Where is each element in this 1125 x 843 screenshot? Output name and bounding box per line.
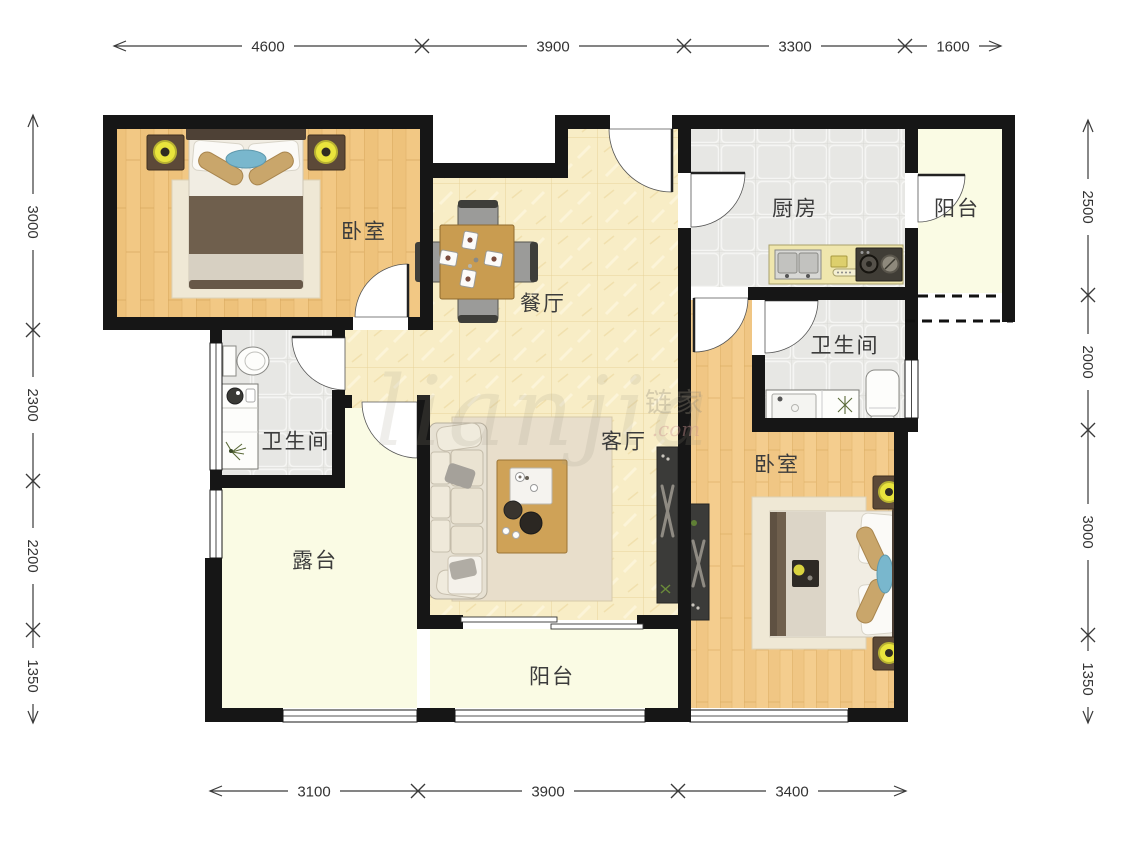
- watermark-cjk: 链家: [645, 388, 707, 418]
- dim-left-2: 2200: [24, 539, 41, 572]
- dim-top-1: 3900: [536, 38, 569, 55]
- dim-right-0: 2500: [1079, 190, 1096, 223]
- dim-bottom-1: 3900: [531, 783, 564, 800]
- nightstand-lamp: [147, 135, 184, 170]
- room-label-bathroom-right: 卫生间: [811, 334, 880, 357]
- dim-chain-right: 2500 2000 3000 1350: [1079, 120, 1097, 723]
- dim-right-3: 1350: [1079, 662, 1096, 695]
- tv-panel-bedroom: [688, 504, 709, 620]
- nightstand-lamp: [308, 135, 345, 170]
- room-label-bathroom-left: 卫生间: [262, 430, 331, 453]
- window: [690, 710, 848, 722]
- kitchen-counter: [769, 245, 903, 284]
- kitchen-sink: [775, 250, 821, 279]
- room-label-dining: 餐厅: [520, 292, 566, 315]
- window: [283, 710, 417, 722]
- room-label-balcony-bottom: 阳台: [529, 665, 575, 688]
- dim-top-2: 3300: [778, 38, 811, 55]
- floor-plan-canvas: lianjia 链家 .com 卧室 餐厅 厨房 阳台 卫生间 卧室 客厅 卫生…: [0, 0, 1125, 843]
- open-boundary-dashed: [905, 296, 1013, 321]
- room-label-balcony-top-right: 阳台: [934, 197, 980, 220]
- dim-chain-left: 3000 2300 2200 1350: [24, 115, 42, 723]
- room-label-kitchen: 厨房: [772, 197, 818, 220]
- toilet: [866, 370, 899, 426]
- bed-top-left: [147, 126, 345, 298]
- dim-right-1: 2000: [1079, 345, 1096, 378]
- dim-top-0: 4600: [251, 38, 284, 55]
- vanity-sink: [221, 384, 258, 469]
- tv-panel-living: [657, 447, 678, 603]
- dim-chain-top: 4600 3900 3300 1600: [114, 37, 1001, 55]
- room-label-bedroom-top-left: 卧室: [341, 220, 387, 243]
- window: [905, 360, 918, 418]
- window: [210, 343, 222, 470]
- stove: [856, 248, 902, 281]
- dim-chain-bottom: 3100 3900 3400: [210, 782, 906, 800]
- dim-left-0: 3000: [24, 205, 41, 238]
- watermark: lianjia 链家 .com: [375, 356, 715, 468]
- dim-left-3: 1350: [24, 659, 41, 692]
- room-label-bedroom-right: 卧室: [754, 453, 800, 476]
- room-label-terrace: 露台: [292, 549, 338, 572]
- dim-bottom-0: 3100: [297, 783, 330, 800]
- room-label-living: 客厅: [601, 430, 647, 453]
- watermark-suffix: .com: [652, 417, 701, 441]
- window: [455, 710, 645, 722]
- dim-right-2: 3000: [1079, 515, 1096, 548]
- window: [210, 490, 222, 558]
- dim-bottom-2: 3400: [775, 783, 808, 800]
- dim-top-3: 1600: [936, 38, 969, 55]
- toilet: [223, 346, 269, 376]
- dim-left-1: 2300: [24, 388, 41, 421]
- coffee-table: [497, 460, 567, 553]
- floor-plan-svg: lianjia 链家 .com 卧室 餐厅 厨房 阳台 卫生间 卧室 客厅 卫生…: [0, 0, 1125, 843]
